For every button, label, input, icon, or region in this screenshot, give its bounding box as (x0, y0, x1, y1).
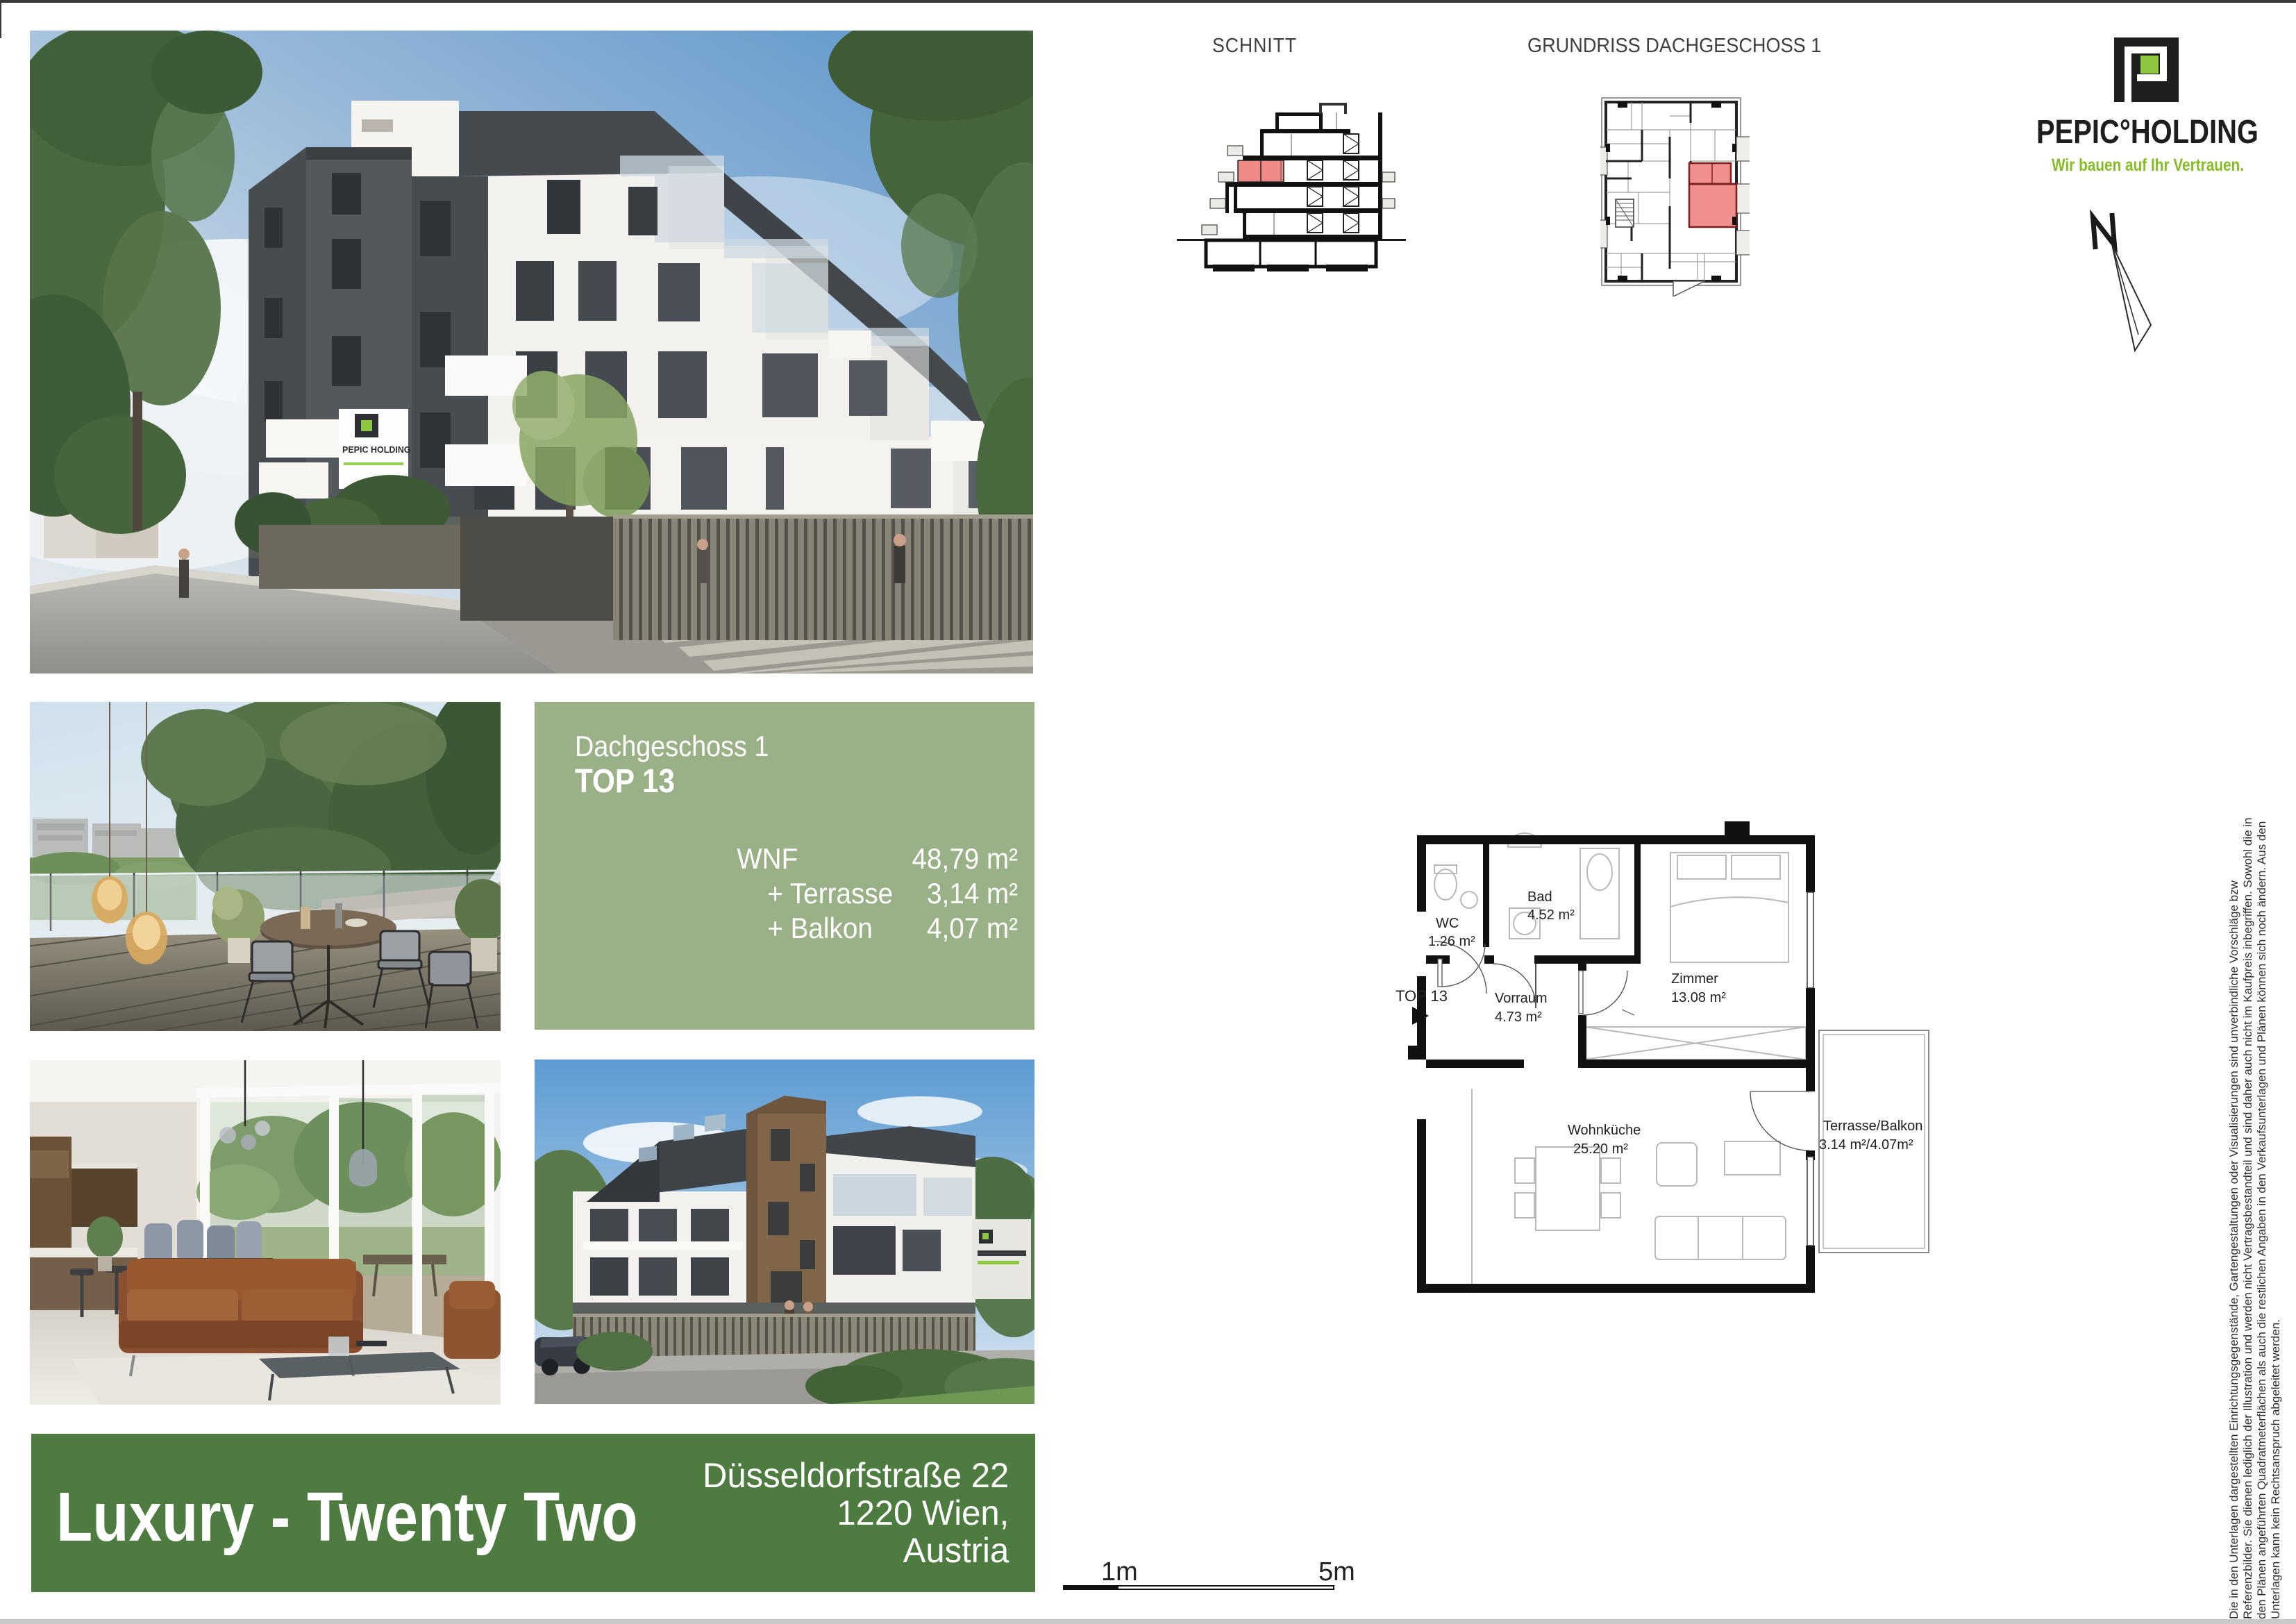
svg-text:Vorraum: Vorraum (1495, 991, 1548, 1006)
svg-text:4.73 m²: 4.73 m² (1495, 1010, 1542, 1025)
svg-text:13.08 m²: 13.08 m² (1671, 990, 1726, 1005)
svg-text:3.14 m²/4.07m²: 3.14 m²/4.07m² (1819, 1137, 1913, 1153)
svg-text:PEPIC HOLDING: PEPIC HOLDING (342, 445, 411, 455)
svg-text:4.52 m²: 4.52 m² (1527, 907, 1575, 923)
svg-text:WC: WC (1436, 916, 1459, 931)
svg-text:Bad: Bad (1527, 889, 1552, 905)
svg-text:Zimmer: Zimmer (1671, 971, 1718, 987)
svg-text:PEPIC°HOLDING: PEPIC°HOLDING (2036, 114, 2259, 151)
svg-text:Wir bauen auf Ihr Vertrauen.: Wir bauen auf Ihr Vertrauen. (2052, 156, 2244, 175)
svg-text:25.20 m²: 25.20 m² (1573, 1141, 1628, 1157)
svg-text:1.26 m²: 1.26 m² (1428, 934, 1475, 949)
svg-text:TOP 13: TOP 13 (1396, 987, 1448, 1005)
svg-text:Wohnküche: Wohnküche (1568, 1123, 1641, 1138)
svg-text:Terrasse/Balkon: Terrasse/Balkon (1823, 1119, 1922, 1134)
